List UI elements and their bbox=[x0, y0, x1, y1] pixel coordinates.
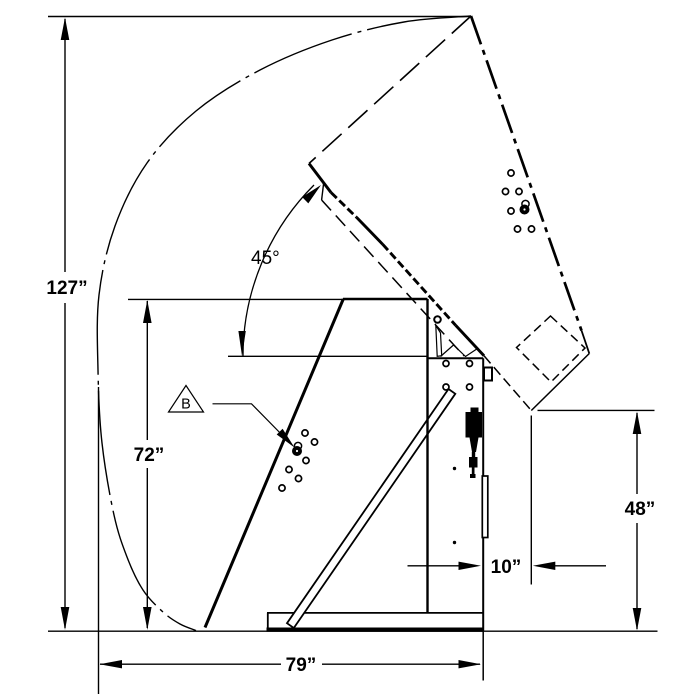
svg-text:45°: 45° bbox=[251, 248, 280, 269]
svg-text:79”: 79” bbox=[286, 655, 317, 676]
svg-text:B: B bbox=[181, 397, 191, 413]
svg-text:10”: 10” bbox=[491, 557, 522, 578]
svg-text:72”: 72” bbox=[134, 445, 165, 466]
svg-text:127”: 127” bbox=[46, 278, 87, 299]
svg-text:48”: 48” bbox=[625, 499, 656, 520]
